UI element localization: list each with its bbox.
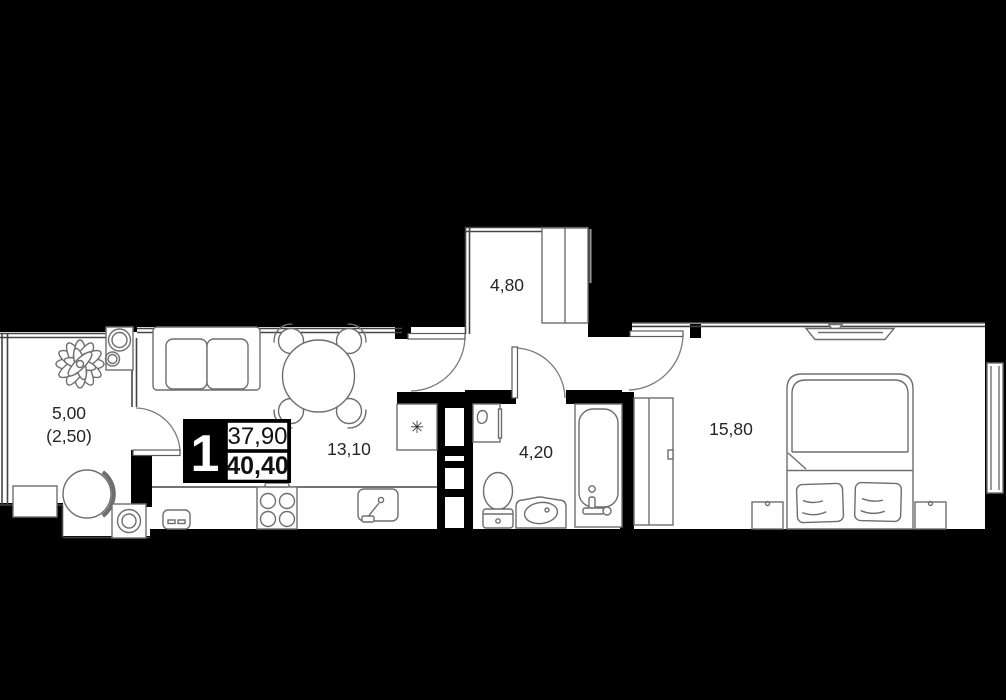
area-lower-value: 40,40: [226, 452, 289, 480]
bathroom-area-label: 4,20: [519, 442, 553, 462]
nightstand-right: [915, 502, 946, 530]
washer-dryer-stack: [106, 327, 134, 370]
area-badge: 1 37,90 40,40: [183, 419, 291, 483]
washing-machine: [112, 504, 146, 538]
rooms-count: 1: [191, 425, 220, 483]
dining-set: [274, 324, 366, 428]
microwave: [163, 510, 190, 529]
double-bed: [787, 374, 913, 529]
balcony-table: [13, 486, 57, 517]
nightstand-left: [752, 502, 783, 530]
corridor-floor: [400, 331, 622, 397]
utility-shaft: [437, 392, 473, 532]
washbasin: [516, 497, 566, 528]
pillow: [796, 483, 843, 523]
kitchen-sink: [358, 489, 398, 522]
bedroom-area-label: 15,80: [709, 419, 753, 439]
hallway-area-label: 4,80: [490, 275, 524, 295]
bedroom-window: [987, 363, 1003, 493]
hallway-wardrobe: [542, 228, 588, 323]
floor-plan-page: ✳: [0, 0, 1006, 700]
toilet: [483, 473, 513, 529]
bathtub: [575, 404, 622, 527]
dining-table: [283, 340, 355, 412]
window-sill: [987, 363, 1003, 493]
pillow: [855, 482, 902, 521]
bedroom-wardrobe: [634, 398, 673, 525]
stove: [257, 483, 297, 529]
sofa: [153, 327, 260, 390]
living-kitchen-area-label: 13,10: [327, 439, 371, 459]
floor-plan-svg: ✳: [0, 0, 1006, 700]
balcony-area-secondary-label: (2,50): [46, 426, 92, 446]
fridge: ✳: [397, 404, 437, 450]
area-upper-value: 37,90: [227, 423, 287, 450]
balcony-area-label: 5,00: [52, 403, 86, 423]
fridge-snowflake-icon: ✳: [410, 418, 424, 438]
bathroom-vanity: [473, 404, 502, 442]
